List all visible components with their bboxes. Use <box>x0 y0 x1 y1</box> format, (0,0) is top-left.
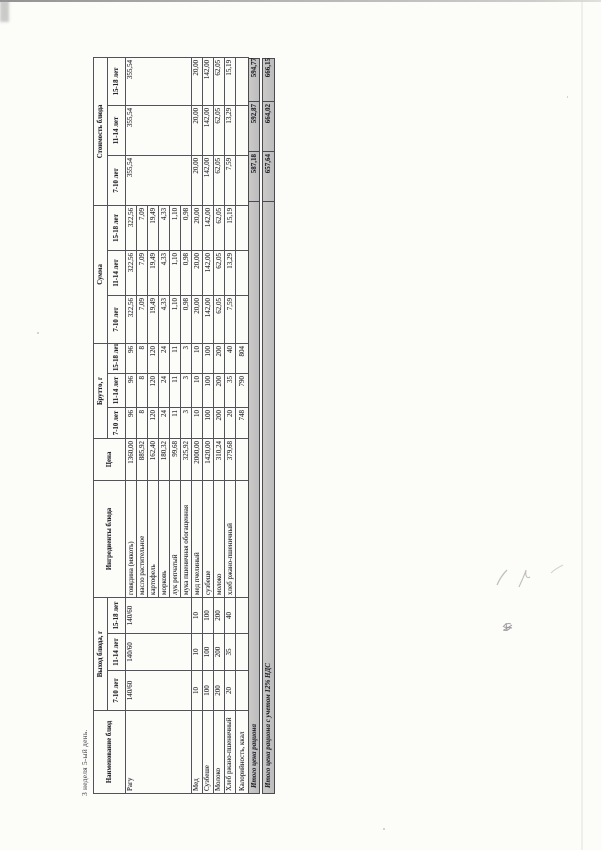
sum-cell: 20,00 <box>192 295 203 343</box>
empty-cell <box>236 295 249 343</box>
cost-cell: 355,54 <box>126 105 192 155</box>
sum-cell: 0,98 <box>181 250 192 295</box>
gross-cell: 8 <box>137 373 148 407</box>
cost-cell: 142,00 <box>203 57 214 105</box>
output-cell: 100 <box>203 671 214 711</box>
gross-cell: 3 <box>181 407 192 438</box>
header-output: Выход блюда, г <box>94 597 108 710</box>
header-gross: Брутто, г <box>94 343 108 438</box>
header-age-cost: 11-14 лет <box>108 105 126 155</box>
output-cell: 100 <box>203 597 214 633</box>
ingredient-cell: мука пшеничная обогащенная <box>181 480 192 597</box>
price-cell: 885,92 <box>137 438 148 480</box>
header-age-sum: 11-14 лет <box>108 250 126 295</box>
dish-name-cell: Рагу <box>126 711 192 794</box>
sum-cell: 322,56 <box>126 205 137 250</box>
dish-name-cell: Сузбеше <box>203 711 214 794</box>
header-row-groups: Наименование блюдВыход блюда, гИнгредиен… <box>94 57 108 793</box>
sum-cell: 0,98 <box>181 205 192 250</box>
gross-cell: 200 <box>214 343 225 373</box>
document-title: 3 неделя 5-ый день. <box>80 729 89 796</box>
cost-cell: 13,29 <box>225 105 236 155</box>
total-value: 657,64 <box>263 152 274 202</box>
sum-cell: 7,09 <box>137 205 148 250</box>
sum-cell: 7,09 <box>137 295 148 343</box>
sum-cell: 142,00 <box>203 250 214 295</box>
dust-speck <box>37 332 39 334</box>
ingredient-cell: мед пчелиный <box>192 480 203 597</box>
scan-edge-top <box>0 0 601 2</box>
gross-cell: 40 <box>225 343 236 373</box>
header-cost: Стоимость блюда <box>94 57 108 205</box>
sum-cell: 322,56 <box>126 250 137 295</box>
header-age-output: 15-18 лет <box>108 597 126 633</box>
gross-cell: 3 <box>181 343 192 373</box>
total-value: 666,15 <box>263 56 274 102</box>
sum-cell: 142,00 <box>203 205 214 250</box>
ingredient-cell: картофель <box>148 480 159 597</box>
dish-row: Хлеб ржано-пшеничный203540хлеб ржано-пше… <box>225 57 236 793</box>
cost-cell: 355,54 <box>126 155 192 205</box>
calories-label-cell: Калорийность, ккал <box>236 711 249 794</box>
header-age-gross: 15-18 лет <box>108 343 126 373</box>
cost-cell: 7,59 <box>225 155 236 205</box>
header-age-sum: 7-10 лет <box>108 295 126 343</box>
pen-stroke <box>497 570 507 585</box>
pen-stroke <box>551 565 563 573</box>
gross-cell: 24 <box>159 343 170 373</box>
empty-cell <box>236 597 249 633</box>
header-row-ages: 7-10 лет11-14 лет15-18 лет7-10 лет11-14 … <box>108 57 126 793</box>
rotated-document: 3 неделя 5-ый день. Наименование блюдВых… <box>78 56 280 798</box>
output-cell: 10 <box>192 671 203 711</box>
header-age-output: 7-10 лет <box>108 671 126 711</box>
output-cell: 35 <box>225 634 236 671</box>
empty-cell <box>236 671 249 711</box>
gross-cell: 96 <box>126 343 137 373</box>
gross-cell: 120 <box>148 343 159 373</box>
cost-cell: 142,00 <box>203 155 214 205</box>
sum-cell: 7,09 <box>137 250 148 295</box>
sum-cell: 62,05 <box>214 250 225 295</box>
header-age-output: 11-14 лет <box>108 634 126 671</box>
ingredient-cell: молоко <box>214 480 225 597</box>
output-cell: 200 <box>214 671 225 711</box>
gross-cell: 96 <box>126 407 137 438</box>
output-cell: 140/60 <box>126 634 192 671</box>
gross-cell: 10 <box>192 343 203 373</box>
ingredient-cell: лук репчатый <box>170 480 181 597</box>
gross-cell: 11 <box>170 407 181 438</box>
gross-cell: 100 <box>203 407 214 438</box>
gross-cell: 10 <box>192 407 203 438</box>
price-cell: 162,40 <box>148 438 159 480</box>
dish-name-cell: Хлеб ржано-пшеничный <box>225 711 236 794</box>
cost-cell: 20,00 <box>192 155 203 205</box>
output-cell: 140/60 <box>126 597 192 633</box>
empty-cell <box>236 155 249 205</box>
sum-cell: 142,00 <box>203 295 214 343</box>
cost-cell: 20,00 <box>192 105 203 155</box>
cost-cell: 62,05 <box>214 105 225 155</box>
price-cell: 379,68 <box>225 438 236 480</box>
cost-cell: 62,05 <box>214 57 225 105</box>
cost-cell: 20,00 <box>192 57 203 105</box>
gross-cell: 120 <box>148 373 159 407</box>
gross-cell: 11 <box>170 343 181 373</box>
total-value: 587,18 <box>249 152 259 202</box>
price-cell: 1360,00 <box>126 438 137 480</box>
menu-table: Наименование блюдВыход блюда, гИнгредиен… <box>93 57 249 794</box>
total-value: 592,87 <box>249 102 259 152</box>
sum-cell: 1,10 <box>170 295 181 343</box>
price-cell: 325,92 <box>181 438 192 480</box>
scan-edge-corner <box>0 0 9 22</box>
gross-cell: 8 <box>137 407 148 438</box>
empty-cell <box>236 105 249 155</box>
empty-cell <box>236 250 249 295</box>
sum-cell: 19,49 <box>148 250 159 295</box>
total-row-ration-price-vat: Итого цена рациона с учетом 12% НДС657,6… <box>262 58 275 794</box>
header-age-gross: 11-14 лет <box>108 373 126 407</box>
header-price: Цена <box>94 438 126 480</box>
sum-cell: 62,05 <box>214 295 225 343</box>
output-cell: 10 <box>192 597 203 633</box>
scan-edge-right <box>581 0 583 850</box>
output-cell: 100 <box>203 634 214 671</box>
sum-cell: 13,29 <box>225 250 236 295</box>
header-age-cost: 15-18 лет <box>108 57 126 105</box>
calories-value-cell: 748 <box>236 407 249 438</box>
sum-cell: 20,00 <box>192 205 203 250</box>
dish-row: Молоко200200200молоко310,2420020020062,0… <box>214 57 225 793</box>
ingredient-cell: масло растительное <box>137 480 148 597</box>
header-age-cost: 7-10 лет <box>108 155 126 205</box>
sum-cell: 7,59 <box>225 295 236 343</box>
empty-cell <box>236 205 249 250</box>
pen-stroke <box>519 570 530 587</box>
total-row-ration-price: Итого цена рациона587,18592,87594,77 <box>248 58 260 794</box>
output-cell: 140/60 <box>126 671 192 711</box>
gross-cell: 3 <box>181 373 192 407</box>
gross-cell: 11 <box>170 373 181 407</box>
gross-cell: 200 <box>214 407 225 438</box>
gross-cell: 10 <box>192 373 203 407</box>
header-age-gross: 7-10 лет <box>108 407 126 438</box>
ingredient-cell: хлеб ржано-пшеничный <box>225 480 236 597</box>
sum-cell: 1,10 <box>170 205 181 250</box>
sum-cell: 19,49 <box>148 295 159 343</box>
ingredient-cell: морковь <box>159 480 170 597</box>
sum-cell: 19,49 <box>148 205 159 250</box>
sum-cell: 4,33 <box>159 205 170 250</box>
output-cell: 200 <box>214 597 225 633</box>
cost-cell: 62,05 <box>214 155 225 205</box>
empty-cell <box>236 57 249 105</box>
dish-name-cell: Мед <box>192 711 203 794</box>
dust-speck <box>567 96 568 98</box>
total-value: 594,77 <box>249 56 259 102</box>
header-ingredients: Ингредиенты блюда <box>94 480 126 597</box>
cost-cell: 142,00 <box>203 105 214 155</box>
total-label: Итого цена рациона с учетом 12% НДС <box>263 202 274 793</box>
header-sum: Сумма <box>94 205 108 343</box>
gross-cell: 20 <box>225 407 236 438</box>
total-value: 664,02 <box>263 102 274 152</box>
price-cell: 1420,00 <box>203 438 214 480</box>
sum-cell: 4,33 <box>159 250 170 295</box>
sum-cell: 322,56 <box>126 295 137 343</box>
cost-cell: 355,54 <box>126 57 192 105</box>
output-cell: 200 <box>214 634 225 671</box>
gross-cell: 100 <box>203 343 214 373</box>
dish-name-cell: Молоко <box>214 711 225 794</box>
sum-cell: 0,98 <box>181 295 192 343</box>
total-label: Итого цена рациона <box>249 202 259 793</box>
empty-cell <box>236 438 249 480</box>
sum-cell: 62,05 <box>214 205 225 250</box>
calories-value-cell: 804 <box>236 343 249 373</box>
dish-row: Мед101010мед пчелиный2000,0010101020,002… <box>192 57 203 793</box>
sum-cell: 1,10 <box>170 250 181 295</box>
empty-cell <box>236 480 249 597</box>
price-cell: 310,24 <box>214 438 225 480</box>
gross-cell: 120 <box>148 407 159 438</box>
output-cell: 40 <box>225 597 236 633</box>
calories-row: Калорийность, ккал748790804 <box>236 57 249 793</box>
dust-speck <box>383 828 385 830</box>
gross-cell: 200 <box>214 373 225 407</box>
gross-cell: 100 <box>203 373 214 407</box>
sum-cell: 4,33 <box>159 295 170 343</box>
calories-value-cell: 790 <box>236 373 249 407</box>
dish-row: Сузбеше100100100сузбеше1420,001001001001… <box>203 57 214 793</box>
output-cell: 20 <box>225 671 236 711</box>
dish-row: Рагу140/60140/60140/60говядина (мякоть)1… <box>126 57 137 793</box>
sum-cell: 20,00 <box>192 250 203 295</box>
gross-cell: 35 <box>225 373 236 407</box>
scanned-page: { "page": { "title": "3 неделя 5-ый день… <box>0 0 601 850</box>
gross-cell: 24 <box>159 407 170 438</box>
sum-cell: 15,19 <box>225 205 236 250</box>
price-cell: 99,68 <box>170 438 181 480</box>
price-cell: 180,32 <box>159 438 170 480</box>
ingredient-cell: сузбеше <box>203 480 214 597</box>
cost-cell: 15,19 <box>225 57 236 105</box>
header-age-sum: 15-18 лет <box>108 205 126 250</box>
header-dish: Наименование блюд <box>94 711 126 794</box>
price-cell: 2000,00 <box>192 438 203 480</box>
ingredient-cell: говядина (мякоть) <box>126 480 137 597</box>
output-cell: 10 <box>192 634 203 671</box>
pen-scribble <box>503 623 512 631</box>
gross-cell: 96 <box>126 373 137 407</box>
gross-cell: 8 <box>137 343 148 373</box>
empty-cell <box>236 634 249 671</box>
gross-cell: 24 <box>159 373 170 407</box>
